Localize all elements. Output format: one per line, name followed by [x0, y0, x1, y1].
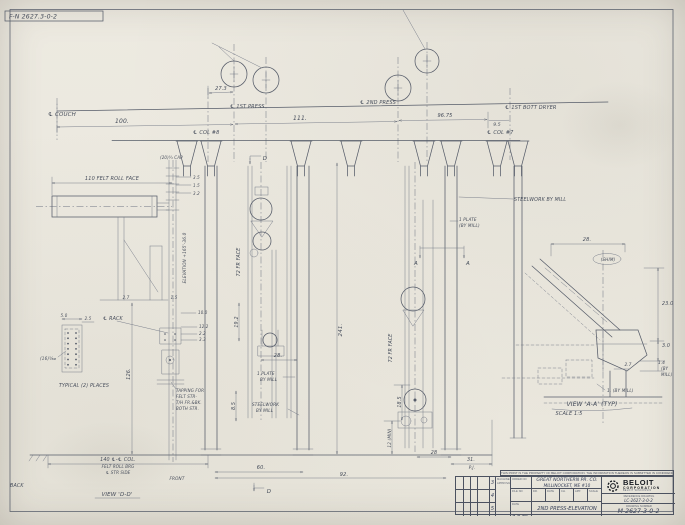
drawing-label: 1.5 [193, 183, 200, 188]
drawing-label: FRONT [169, 476, 184, 481]
drawing-label: ℄ COL #7 [487, 130, 514, 136]
drawing-label: (SHIM) [601, 257, 616, 262]
brand-name: BELOIT [623, 479, 660, 486]
drawing-label: T/H FR.&BK. [176, 400, 202, 405]
drawing-labels: ℄ COUCH100.27.3℄ 1ST PRESS111.℄ 2ND PRES… [10, 86, 673, 498]
drawing-label: ℄ 2ND PRESS [360, 100, 397, 106]
drawing-label: BOTH STR. [176, 406, 199, 411]
drawing-label: A [465, 261, 470, 267]
drawing-label: 140 ℄-℄ COL. [100, 457, 136, 463]
brand-tagline: BELOIT WISCONSIN [623, 490, 660, 493]
date-label: DATE [511, 502, 532, 506]
rack-plate-detail [58, 319, 168, 372]
drawing-label: 1.4 [658, 360, 665, 365]
drawing-label: 18.5 [397, 396, 403, 407]
drawing-label: D [263, 156, 267, 162]
title-block: THIS PRINT IS THE PROPERTY OF BELOIT COR… [455, 470, 674, 515]
drawing-label: 100. [115, 118, 129, 125]
drawing-label: FELT ROLL BRG [102, 464, 135, 469]
drawing-label: 31. [467, 457, 475, 463]
drawing-label: A [413, 261, 418, 267]
drawing-label: 72 FR FACE [388, 333, 394, 363]
drawing-label: TYPICAL (2) PLACES [59, 383, 109, 389]
drawing-label: TAPPING FOR [176, 388, 204, 393]
drawing-number: M-2627-3-0-2 [602, 508, 675, 515]
drawing-label: BACK [10, 483, 24, 489]
order-label: ORDER NO [511, 477, 532, 481]
drawing-label: ℄ COUCH [48, 111, 76, 118]
drawing-label: (BY MILL) [459, 223, 480, 228]
drawing-label: ELEVATION +165'-36.0 [182, 232, 187, 283]
machine-columns [29, 160, 526, 466]
drawing-label: 3.2 [193, 191, 200, 196]
drawing-canvas: F-N 2627.3-0-2 [0, 0, 685, 525]
drawing-label: 28. [274, 353, 282, 359]
drawing-label: 12.2 [199, 324, 209, 329]
revision-grid: 3 4 5 [456, 477, 496, 516]
drawing-label: 10.0 [198, 310, 208, 315]
drawing-label: MILL) [661, 372, 673, 377]
drawing-label: D [267, 489, 271, 495]
detail-view-a-a [502, 244, 664, 411]
ch-label: CH. [560, 489, 573, 493]
approval-cell: MACHINE APPROVAL [496, 477, 511, 516]
drawing-label: 27.3 [215, 86, 227, 92]
drawing-label: BY MILL [260, 377, 278, 382]
drawing-label: (20)¾ CAP [160, 155, 183, 160]
drawing-label: ℄ STR SIDE [106, 470, 131, 475]
revision-number: 4 [489, 489, 496, 502]
drawing-label: 2.2 [199, 331, 206, 336]
drawing-label: 23.0 [662, 301, 673, 307]
customer-location: MILLINOCKET, ME #10 [532, 483, 602, 488]
felt-roll-assembly [52, 177, 172, 300]
drawing-label: 92. [340, 472, 348, 478]
drawing-label: 2.7 [123, 295, 130, 300]
drawing-label: 3.3 [199, 337, 206, 342]
drawing-label: ℄ 1ST BOTT DRYER [505, 105, 557, 111]
stretcher-bracket [157, 313, 197, 389]
app-label: APP. [574, 489, 587, 493]
drawing-label: VIEW 'D-D' [101, 492, 132, 498]
revision-number: 3 [489, 477, 496, 489]
beloit-logo-icon [606, 479, 620, 493]
approval-label: MACHINE [496, 477, 510, 481]
drawing-label: ℄ RACK [103, 316, 124, 322]
drawing-label: 19.2 [234, 316, 240, 327]
reference-number: LC-2627-3-0-2 [602, 498, 675, 503]
drawing-label: 9.5 [493, 122, 501, 128]
date2-label: DATE [546, 489, 559, 493]
drawing-label: 60. [257, 465, 265, 471]
scale-label: SCALE [588, 489, 602, 493]
drawing-label: 111. [293, 115, 307, 122]
drawing-label: 2.7 [624, 362, 631, 367]
drawing-label: 8.5 [231, 402, 237, 410]
order-file-date-column: ORDER NO 13775 FILE NO 631 DATE 7-7-78 [511, 477, 532, 516]
drawing-label: VIEW 'A-A' (TYP) [566, 401, 617, 408]
drawing-label: SCALE 1:5 [555, 411, 582, 417]
drawing-label: STEELWORK [252, 402, 280, 407]
drawing-label: 1.5 [171, 295, 178, 300]
stamp-number: F-N 2627.3-0-2 [9, 14, 57, 21]
drawing-label: (BY [661, 366, 669, 371]
drawing-label: 5.0 [61, 313, 68, 318]
drawing-label: 28. [583, 237, 591, 243]
drawing-title: 2ND PRESS-ELEVATION [532, 506, 602, 512]
brand-column: BELOIT CORPORATION BELOIT WISCONSIN REFE… [602, 477, 675, 516]
approval-label: APPROVAL [496, 481, 510, 485]
drawing-label: 12 (MIN) [387, 428, 392, 447]
drawing-label: 1 PLATE [459, 217, 477, 222]
file-label: FILE NO [511, 489, 532, 493]
drawing-label: 3.5 [193, 175, 200, 180]
drawing-label: (16)⅝⌀ [40, 356, 56, 361]
customer-column: GREAT NORTHERN PR. CO. MILLINOCKET, ME #… [532, 477, 602, 516]
drawing-label: 110 FELT ROLL FACE [85, 176, 140, 182]
drawing-label: 241. [338, 323, 344, 336]
drawing-label: 1. (BY MILL) [607, 388, 634, 393]
drawing-label: 126. [126, 368, 132, 380]
drawing-label: 72 FR FACE [236, 247, 242, 277]
drawing-label: 96.75 [437, 113, 452, 119]
drawing-label: ℄ COL #8 [193, 130, 219, 136]
drawing-label: 28 [431, 450, 437, 456]
drawing-label: ℄ 1ST PRESS [230, 104, 265, 110]
drawing-label: STEELWORK BY MILL [514, 197, 566, 203]
blueprint-sheet: F-N 2627.3-0-2 [0, 0, 685, 525]
ceiling-hangers [176, 141, 529, 176]
drawing-label: 3.0 [662, 343, 670, 349]
dr-label: DR. [532, 489, 545, 493]
drawing-label: 1 PLATE [257, 371, 275, 376]
border-frame [5, 10, 673, 512]
top-rolls [212, 10, 439, 101]
revision-number: 5 [489, 502, 496, 516]
drawing-label: FELT STR- [176, 394, 197, 399]
dimension-lines-top [57, 86, 608, 141]
title-block-main: 3 4 5 MACHINE APPROVAL ORDER NO 13775 FI… [455, 476, 674, 515]
drawing-label: 2.5 [85, 316, 92, 321]
drawing-label: BY MILL [256, 408, 274, 413]
